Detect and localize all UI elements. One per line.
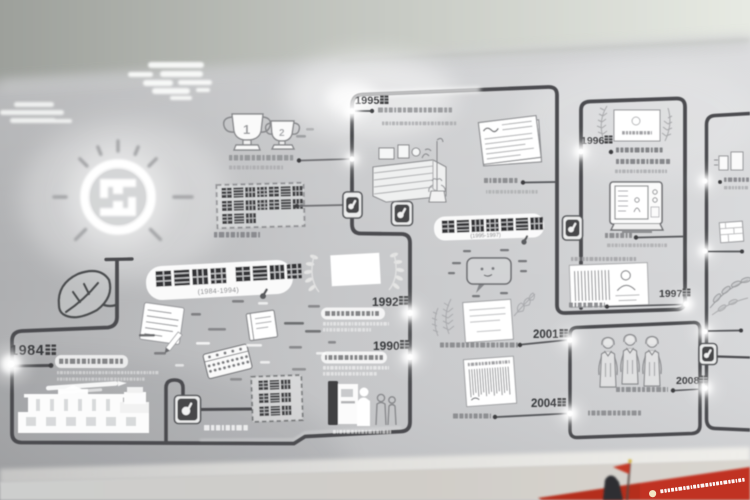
svg-text:2: 2 (279, 128, 285, 139)
svg-text:2001: 2001 (533, 329, 559, 341)
svg-text:1: 1 (243, 122, 250, 137)
svg-text:1990: 1990 (373, 339, 400, 353)
svg-text:(1995-1997): (1995-1997) (470, 233, 501, 240)
svg-text:2004: 2004 (531, 398, 557, 410)
svg-text:1992: 1992 (372, 295, 399, 309)
